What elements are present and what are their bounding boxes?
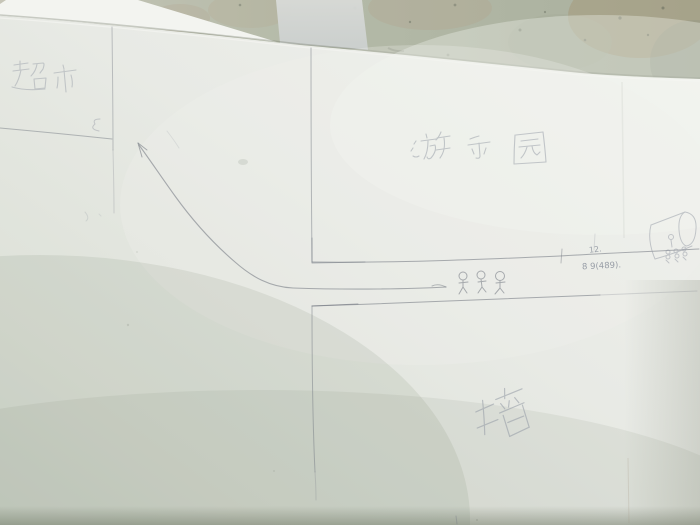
note-line1: 12. [589, 244, 603, 254]
note-line2: 8 9(489). [582, 260, 622, 272]
photo-of-pencil-sketch: 12. 8 9(489). [0, 0, 700, 525]
sketch-photo-canvas: 12. 8 9(489). [0, 0, 700, 525]
